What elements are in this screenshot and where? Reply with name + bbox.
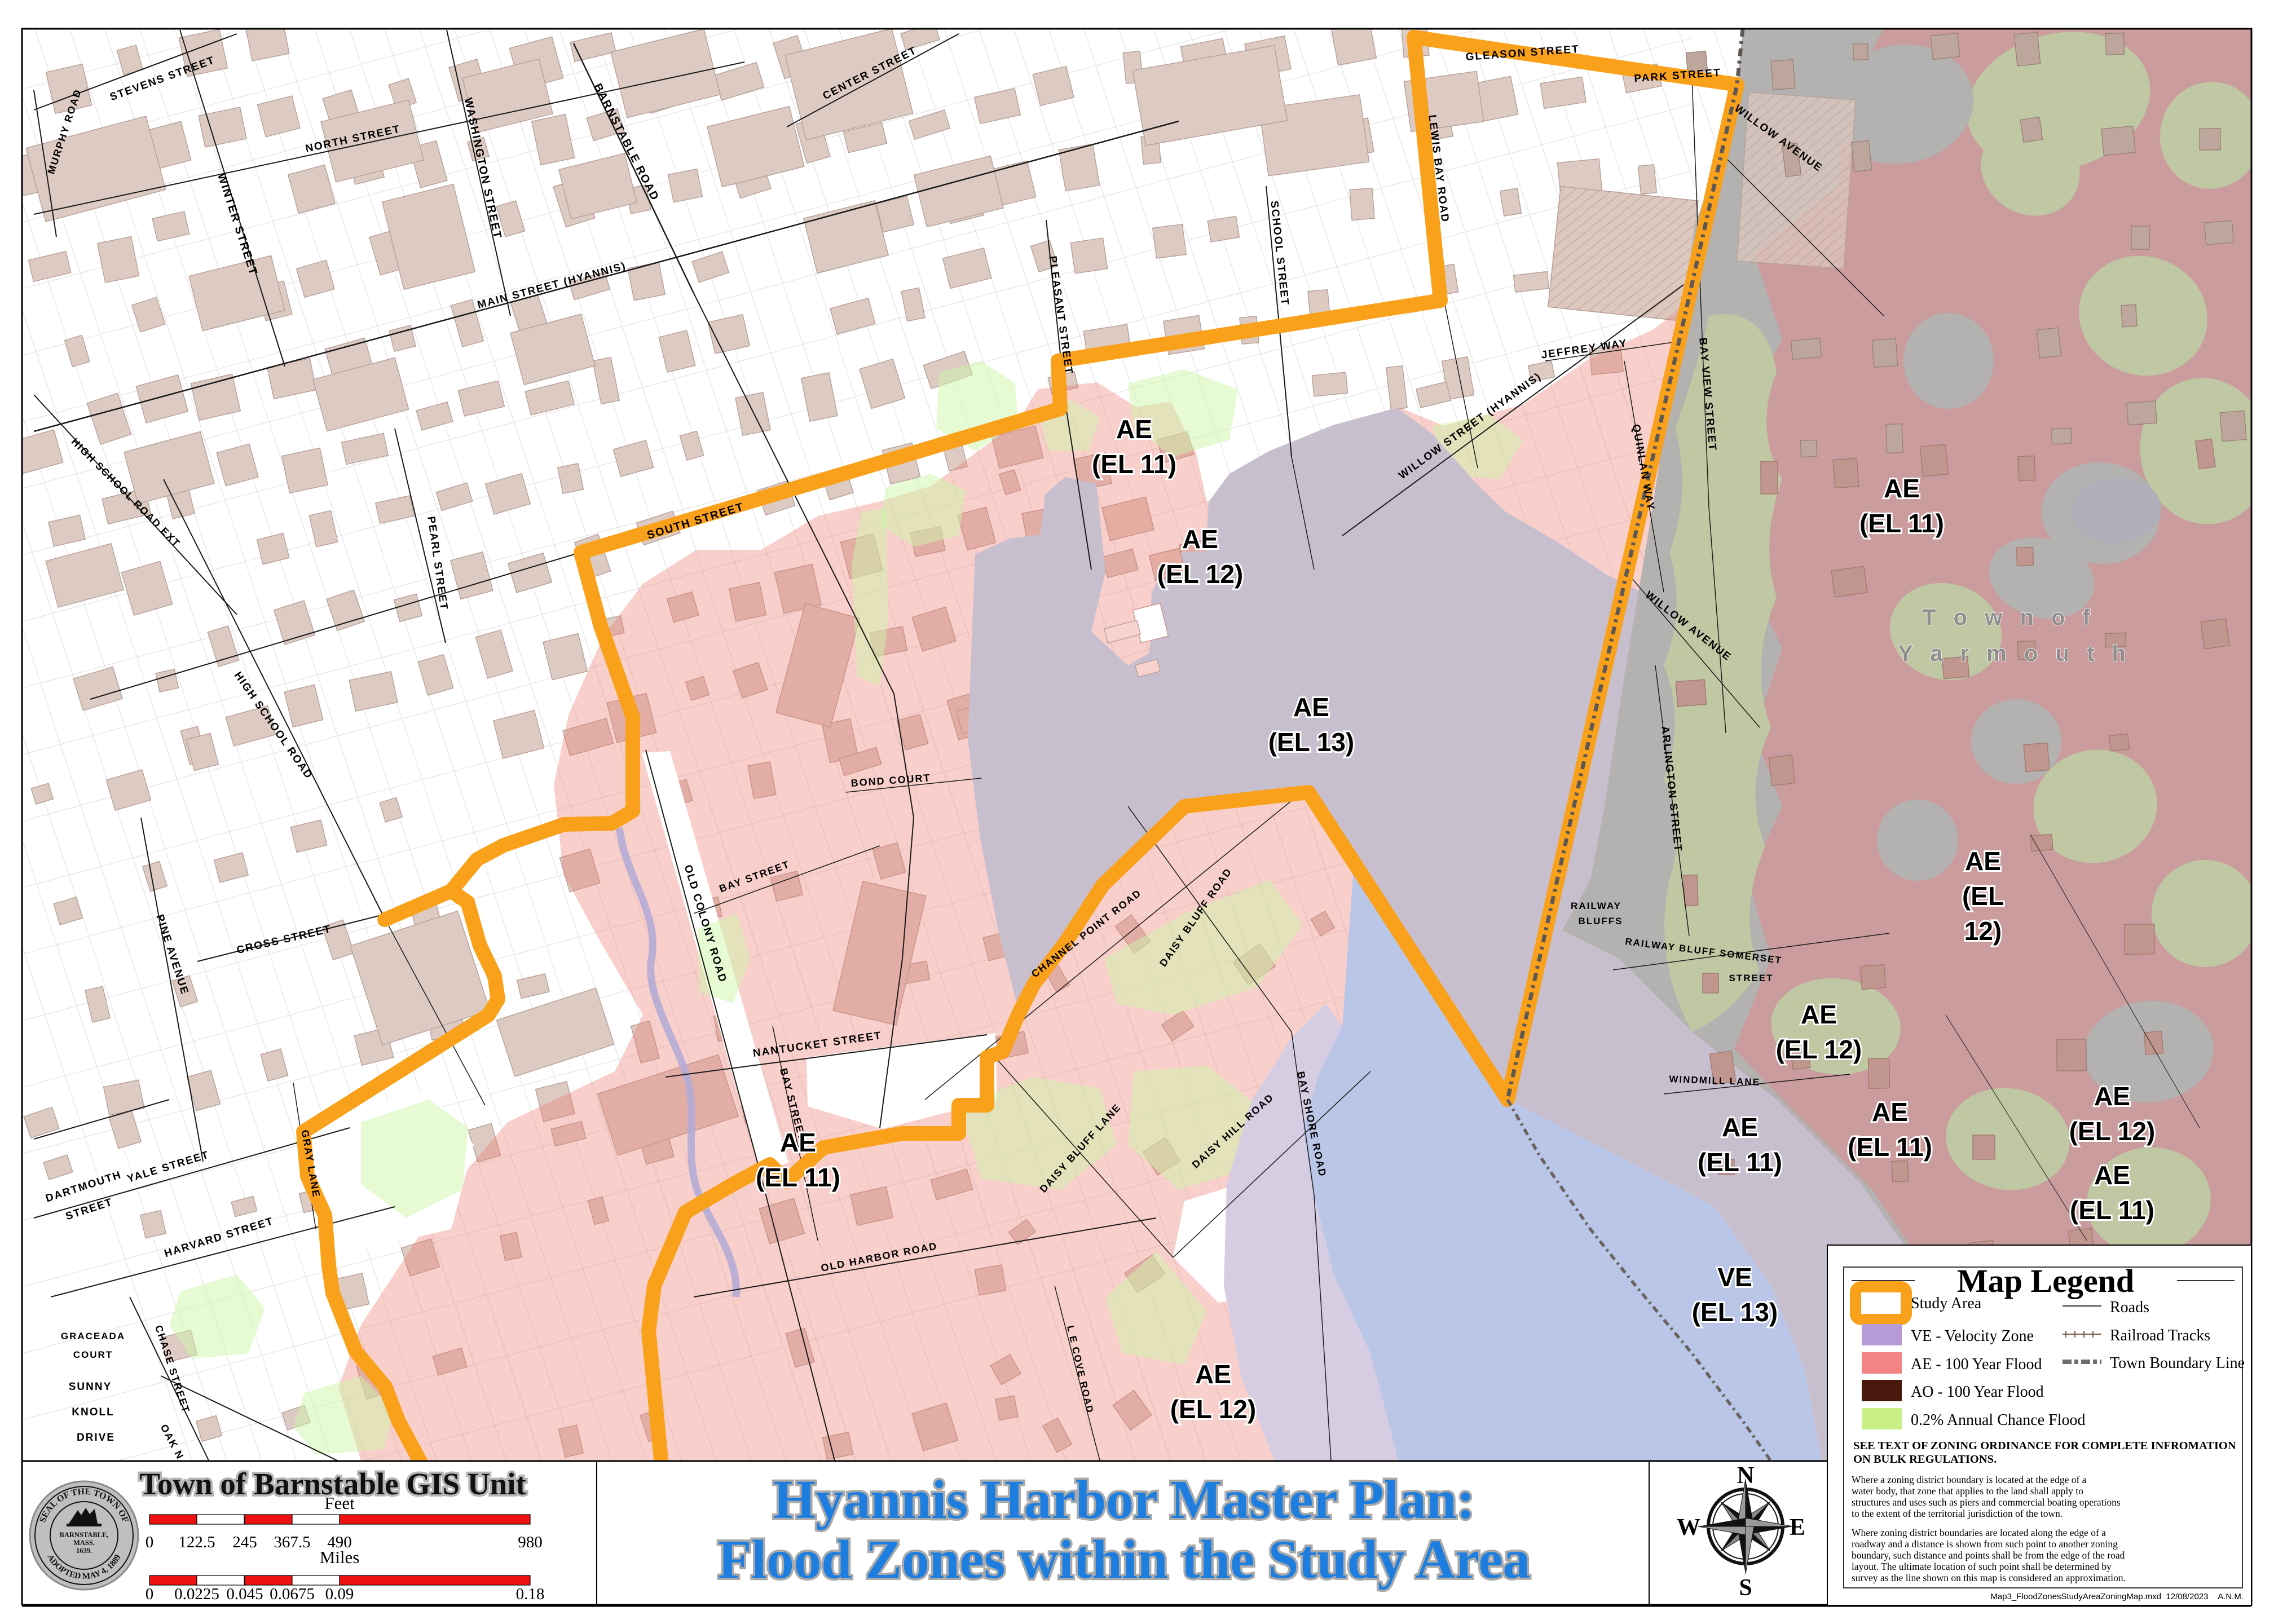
svg-text:122.5: 122.5: [178, 1533, 215, 1551]
svg-text:SEE TEXT OF ZONING ORDINANCE F: SEE TEXT OF ZONING ORDINANCE FOR COMPLET…: [1853, 1440, 2236, 1452]
svg-text:Map3_FloodZonesStudyAreaZoning: Map3_FloodZonesStudyAreaZoningMap.mxd 12…: [1990, 1592, 2244, 1601]
svg-text:0.09: 0.09: [325, 1585, 354, 1603]
svg-text:T o w n o f: T o w n o f: [1922, 605, 2096, 630]
svg-text:Feet: Feet: [324, 1493, 355, 1513]
svg-text:(EL 13): (EL 13): [1268, 727, 1355, 757]
svg-text:KNOLL: KNOLL: [72, 1406, 114, 1418]
svg-text:E: E: [1790, 1515, 1805, 1541]
svg-text:0.0225: 0.0225: [174, 1585, 219, 1603]
svg-text:AE: AE: [1722, 1113, 1758, 1142]
svg-text:survey as the line shown on th: survey as the line shown on this map is …: [1852, 1572, 2126, 1583]
svg-text:0.18: 0.18: [516, 1585, 545, 1603]
svg-text:AE: AE: [1182, 524, 1218, 554]
svg-text:AE: AE: [780, 1128, 816, 1157]
svg-text:BLUFFS: BLUFFS: [1578, 916, 1623, 926]
svg-text:W: W: [1677, 1515, 1700, 1541]
svg-text:(EL 11): (EL 11): [1698, 1148, 1782, 1177]
svg-text:structures and uses such as pi: structures and uses such as piers and co…: [1852, 1497, 2121, 1508]
svg-text:BARNSTABLE,: BARNSTABLE,: [60, 1531, 109, 1539]
svg-text:0: 0: [146, 1533, 154, 1551]
svg-text:(EL 11): (EL 11): [2070, 1195, 2154, 1225]
svg-text:DRIVE: DRIVE: [77, 1432, 115, 1444]
svg-text:Hyannis Harbor Master Plan:: Hyannis Harbor Master Plan:: [773, 1469, 1475, 1530]
svg-text:(EL 11): (EL 11): [756, 1163, 840, 1192]
svg-text:to the extent of the territori: to the extent of the territorial jurisdi…: [1852, 1508, 2063, 1519]
svg-text:Railroad Tracks: Railroad Tracks: [2110, 1327, 2210, 1344]
svg-text:N: N: [1737, 1463, 1754, 1489]
svg-text:Town Boundary Line: Town Boundary Line: [2110, 1354, 2245, 1372]
svg-text:ON BULK REGULATIONS.: ON BULK REGULATIONS.: [1853, 1453, 1997, 1466]
svg-text:layout. The ultimate location: layout. The ultimate location of such po…: [1852, 1561, 2112, 1572]
svg-text:(EL 13): (EL 13): [1692, 1298, 1778, 1327]
svg-text:(EL 12): (EL 12): [1776, 1035, 1862, 1064]
svg-text:AE: AE: [1293, 692, 1329, 722]
svg-text:(EL 11): (EL 11): [1859, 509, 1944, 538]
svg-text:Roads: Roads: [2110, 1299, 2149, 1316]
svg-text:AO - 100 Year Flood: AO - 100 Year Flood: [1911, 1383, 2044, 1401]
svg-text:(EL 12): (EL 12): [1170, 1394, 1257, 1424]
svg-text:Where zoning district boundari: Where zoning district boundaries are loc…: [1852, 1527, 2106, 1538]
svg-text:980: 980: [518, 1533, 543, 1551]
svg-text:Flood Zones within the Study A: Flood Zones within the Study Area: [718, 1529, 1530, 1590]
svg-text:AE: AE: [1872, 1097, 1908, 1127]
svg-text:AE: AE: [1116, 414, 1152, 444]
svg-text:boundary, such distance and po: boundary, such distance and points shall…: [1852, 1550, 2125, 1561]
svg-text:VE - Velocity Zone: VE - Velocity Zone: [1911, 1327, 2034, 1345]
svg-text:GRACEADA: GRACEADA: [61, 1331, 125, 1341]
svg-text:STREET: STREET: [1729, 973, 1773, 983]
svg-text:MASS.: MASS.: [73, 1539, 95, 1547]
svg-text:Where a zoning district bounda: Where a zoning district boundary is loca…: [1852, 1474, 2087, 1485]
svg-text:0.0675: 0.0675: [270, 1585, 315, 1603]
svg-text:AE: AE: [2094, 1160, 2130, 1190]
svg-text:Study Area: Study Area: [1911, 1295, 1982, 1312]
svg-text:0.2% Annual Chance Flood: 0.2% Annual Chance Flood: [1911, 1411, 2086, 1429]
svg-text:Miles: Miles: [320, 1547, 360, 1567]
svg-text:AE: AE: [1801, 1000, 1837, 1029]
svg-text:COURT: COURT: [73, 1349, 113, 1360]
svg-text:0.045: 0.045: [226, 1585, 263, 1603]
svg-text:(EL 12): (EL 12): [1157, 559, 1244, 589]
svg-text:water body, that zone that app: water body, that zone that applies to th…: [1852, 1485, 2083, 1497]
svg-text:AE: AE: [1884, 474, 1920, 503]
svg-text:AE: AE: [1195, 1360, 1231, 1389]
svg-text:VE: VE: [1717, 1263, 1752, 1292]
svg-text:S: S: [1739, 1575, 1752, 1601]
svg-text:AE: AE: [2094, 1082, 2130, 1111]
svg-text:(EL 12): (EL 12): [2069, 1116, 2156, 1146]
svg-text:Y a r m o u t h: Y a r m o u t h: [1898, 641, 2131, 666]
svg-text:1639.: 1639.: [76, 1547, 92, 1555]
svg-text:245: 245: [232, 1533, 257, 1551]
svg-text:AE - 100 Year Flood: AE - 100 Year Flood: [1911, 1356, 2042, 1373]
svg-text:roadway and a distance is show: roadway and a distance is shown from suc…: [1852, 1538, 2118, 1550]
svg-text:(EL 11): (EL 11): [1848, 1132, 1932, 1162]
svg-text:0: 0: [146, 1585, 154, 1603]
svg-text:(EL: (EL: [1962, 881, 2004, 911]
svg-text:RAILWAY: RAILWAY: [1571, 901, 1621, 911]
svg-text:12): 12): [1964, 916, 2002, 946]
svg-text:AE: AE: [1965, 846, 2001, 876]
svg-text:SUNNY: SUNNY: [69, 1381, 112, 1393]
svg-text:Map Legend: Map Legend: [1957, 1263, 2134, 1299]
svg-text:(EL 11): (EL 11): [1092, 449, 1176, 479]
svg-text:367.5: 367.5: [274, 1533, 310, 1551]
